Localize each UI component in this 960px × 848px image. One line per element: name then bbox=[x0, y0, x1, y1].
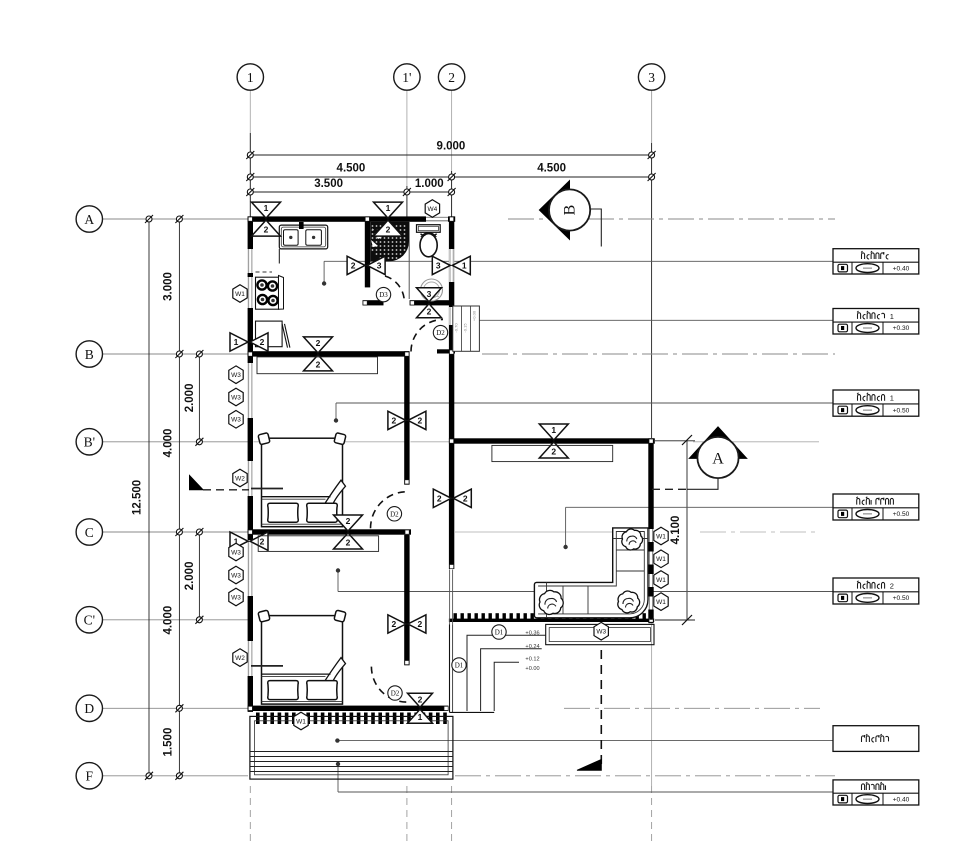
svg-text:W3: W3 bbox=[596, 629, 606, 636]
svg-text:2: 2 bbox=[427, 306, 432, 316]
svg-text:2: 2 bbox=[551, 447, 556, 457]
svg-text:-0.70: -0.70 bbox=[454, 323, 459, 333]
svg-text:+0.50: +0.50 bbox=[893, 511, 910, 518]
svg-text:W3: W3 bbox=[231, 572, 241, 579]
svg-text:2: 2 bbox=[448, 70, 455, 85]
svg-text:W1: W1 bbox=[656, 533, 666, 540]
svg-text:-0.15: -0.15 bbox=[463, 323, 468, 333]
svg-text:1: 1 bbox=[462, 261, 467, 271]
svg-text:+0.40: +0.40 bbox=[893, 265, 910, 272]
svg-text:4.100: 4.100 bbox=[670, 516, 682, 545]
svg-text:3: 3 bbox=[436, 261, 441, 271]
svg-text:1.000: 1.000 bbox=[415, 178, 444, 190]
svg-text:2: 2 bbox=[316, 338, 321, 348]
svg-text:D1: D1 bbox=[495, 629, 504, 637]
svg-text:W2: W2 bbox=[235, 475, 245, 482]
svg-text:2: 2 bbox=[418, 694, 423, 704]
svg-text:2: 2 bbox=[418, 619, 423, 629]
svg-text:4.000: 4.000 bbox=[163, 429, 175, 458]
svg-text:4.500: 4.500 bbox=[537, 163, 566, 175]
svg-text:2: 2 bbox=[890, 582, 894, 591]
svg-text:1': 1' bbox=[402, 70, 411, 85]
svg-text:3: 3 bbox=[377, 261, 382, 271]
svg-text:2: 2 bbox=[346, 538, 351, 548]
svg-text:9.000: 9.000 bbox=[437, 141, 466, 153]
svg-text:D2: D2 bbox=[391, 690, 400, 698]
svg-text:1: 1 bbox=[418, 712, 423, 722]
svg-text:1: 1 bbox=[890, 312, 894, 321]
svg-text:+0.40: +0.40 bbox=[893, 796, 910, 803]
svg-text:1: 1 bbox=[234, 337, 239, 347]
svg-text:1: 1 bbox=[247, 70, 254, 85]
svg-text:2: 2 bbox=[392, 416, 397, 426]
svg-text:3.000: 3.000 bbox=[163, 272, 175, 301]
svg-text:W2: W2 bbox=[235, 655, 245, 662]
svg-text:+0.00: +0.00 bbox=[472, 310, 477, 321]
svg-text:W3: W3 bbox=[231, 394, 241, 401]
svg-text:W1: W1 bbox=[656, 556, 666, 563]
svg-text:2: 2 bbox=[316, 359, 321, 369]
svg-text:D2: D2 bbox=[436, 329, 445, 337]
svg-text:2: 2 bbox=[264, 225, 269, 235]
svg-text:2: 2 bbox=[437, 494, 442, 504]
svg-text:3: 3 bbox=[648, 70, 655, 85]
svg-text:+0.50: +0.50 bbox=[893, 595, 910, 602]
svg-text:1.500: 1.500 bbox=[163, 728, 175, 757]
svg-text:W1: W1 bbox=[656, 599, 666, 606]
svg-text:+0.00: +0.00 bbox=[525, 666, 539, 672]
svg-text:1: 1 bbox=[386, 203, 391, 213]
svg-text:D3: D3 bbox=[379, 291, 388, 299]
svg-text:+0.36: +0.36 bbox=[525, 631, 539, 637]
svg-text:W1: W1 bbox=[296, 718, 306, 725]
svg-text:W3: W3 bbox=[231, 417, 241, 424]
svg-text:2: 2 bbox=[260, 536, 265, 546]
svg-text:2: 2 bbox=[463, 494, 468, 504]
svg-text:W3: W3 bbox=[231, 549, 241, 556]
svg-text:C: C bbox=[85, 525, 94, 540]
svg-text:2: 2 bbox=[346, 516, 351, 526]
svg-text:B: B bbox=[85, 347, 94, 362]
svg-text:3.500: 3.500 bbox=[314, 178, 343, 190]
svg-text:4.500: 4.500 bbox=[337, 163, 366, 175]
svg-text:W4: W4 bbox=[428, 206, 438, 213]
svg-text:D: D bbox=[84, 701, 94, 716]
svg-text:A: A bbox=[84, 212, 94, 227]
svg-text:1: 1 bbox=[551, 425, 556, 435]
svg-text:12.500: 12.500 bbox=[132, 480, 144, 515]
svg-text:W1: W1 bbox=[656, 577, 666, 584]
svg-text:1: 1 bbox=[890, 394, 894, 403]
svg-text:A: A bbox=[712, 451, 724, 468]
svg-text:2: 2 bbox=[386, 225, 391, 235]
svg-text:+0.30: +0.30 bbox=[893, 325, 910, 332]
svg-text:2: 2 bbox=[351, 261, 356, 271]
svg-text:2: 2 bbox=[260, 337, 265, 347]
svg-text:W3: W3 bbox=[231, 372, 241, 379]
svg-text:2.000: 2.000 bbox=[184, 562, 196, 591]
svg-text:D1: D1 bbox=[455, 662, 464, 670]
svg-text:2: 2 bbox=[392, 619, 397, 629]
svg-text:+0.24: +0.24 bbox=[525, 644, 539, 650]
svg-text:2.000: 2.000 bbox=[184, 384, 196, 413]
svg-text:4.000: 4.000 bbox=[163, 606, 175, 635]
svg-text:3: 3 bbox=[427, 289, 432, 299]
svg-text:B: B bbox=[562, 205, 579, 216]
svg-text:W3: W3 bbox=[231, 594, 241, 601]
svg-text:+0.12: +0.12 bbox=[525, 657, 539, 663]
svg-text:1: 1 bbox=[264, 203, 269, 213]
svg-text:D2: D2 bbox=[390, 510, 399, 518]
svg-text:F: F bbox=[86, 769, 94, 784]
svg-text:+0.50: +0.50 bbox=[893, 407, 910, 414]
svg-text:C': C' bbox=[84, 613, 95, 628]
svg-text:2: 2 bbox=[418, 416, 423, 426]
svg-text:W1: W1 bbox=[235, 291, 245, 298]
svg-text:B': B' bbox=[84, 435, 95, 450]
